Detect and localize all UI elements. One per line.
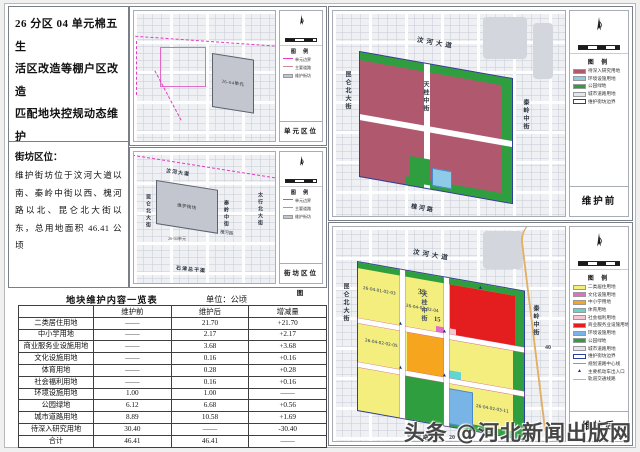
value-cell: 0.16 — [171, 376, 249, 388]
legend-item: 单元边界 — [283, 198, 319, 204]
legend-item: 商业服务业设施用地 — [573, 322, 625, 328]
watermark: 头条 @河北新闻出版网 — [404, 417, 632, 447]
legend-item: 公园绿地 — [573, 83, 625, 89]
parcel-code: 26-04-02-03-11 — [476, 403, 509, 414]
row-label: 环境设施用地 — [19, 388, 94, 400]
legend-swatch — [573, 76, 586, 81]
legend-label: 单元边界 — [295, 57, 311, 63]
legend-item: 轨道交通线路 — [573, 376, 625, 382]
legend-swatch — [573, 379, 586, 380]
legend-item: 城市道路用地 — [573, 91, 625, 97]
legend-swatch — [573, 363, 586, 364]
value-cell: —— — [94, 376, 172, 388]
table-row: 体育用地——0.28+0.28 — [19, 364, 327, 376]
block-map-legend: 图 例 单元边界主要道路维护街坊 — [280, 186, 322, 263]
unit-location-map: 26-04单元 图 例 单元边界主要道路维护街坊 单元区位图 — [129, 6, 327, 146]
legend-label: 主要道路 — [295, 206, 311, 212]
row-label: 二类居住用地 — [19, 317, 94, 329]
legend-swatch — [283, 66, 293, 70]
before-parcel — [359, 51, 513, 204]
road-label-left: 昆仑北大街 — [343, 71, 352, 111]
legend-title: 图 例 — [573, 273, 625, 282]
legend-swatch — [283, 199, 293, 203]
legend-label: 维护街坊 — [295, 73, 311, 79]
unit-map-canvas: 26-04单元 — [133, 10, 276, 142]
legend-item: 环境设施用地 — [573, 330, 625, 336]
row-label: 商业服务业设施用地 — [19, 341, 94, 353]
road-label-right: 太行北大街 — [256, 192, 263, 227]
block-map-canvas: 维护街坊 汶河大道 昆仑北大街 秦岭中街 太行北大街 石津总干渠 槐河路 26-… — [133, 151, 276, 284]
value-cell: 3.68 — [171, 341, 249, 353]
location-heading: 街坊区位： — [15, 149, 122, 163]
table-title: 地块维护内容一览表 — [66, 292, 158, 306]
block-map-sidebar: 图 例 单元边界主要道路维护街坊 街坊区位图 — [279, 151, 323, 284]
road-label-left: 昆仑北大街 — [341, 283, 350, 323]
row-label: 体育用地 — [19, 364, 94, 376]
table-row: 城市道路用地8.8910.58+1.69 — [19, 412, 327, 424]
legend-swatch — [573, 323, 586, 328]
scale-bar — [285, 38, 317, 42]
legend-label: 城市道路用地 — [588, 91, 616, 97]
location-description: 街坊区位： 维护街坊位于汶河大道以南、秦岭中街以西、槐河路以北、昆仑北大街以东，… — [8, 141, 129, 288]
legend-label: 维护街坊 — [295, 214, 311, 220]
table-row: 待深入研究用地30.40——-30.40 — [19, 423, 327, 435]
value-cell: +21.70 — [249, 317, 327, 329]
entrance-triangle-icon: ▲ — [398, 365, 403, 371]
compass-icon — [593, 16, 605, 41]
value-cell: +2.17 — [249, 329, 327, 341]
legend-swatch — [573, 331, 586, 336]
legend-label: 环境设施用地 — [588, 330, 616, 336]
value-cell: 0.16 — [171, 353, 249, 365]
block-number: 15 — [434, 316, 441, 324]
road-label-bottom: 石津总干渠 — [176, 264, 207, 274]
legend-title: 图 例 — [573, 57, 625, 66]
entrance-triangle-icon: ▲ — [442, 329, 447, 335]
legend-label: 文化设施用地 — [588, 292, 616, 298]
legend-title: 图 例 — [283, 189, 319, 196]
legend-item: 待深入研究用地 — [573, 68, 625, 74]
legend-swatch — [573, 285, 586, 290]
unit-block-label: 26-04单元 — [222, 79, 245, 89]
road-label-top: 汶河大道 — [412, 246, 451, 262]
block-map-caption: 街坊区位图 — [280, 263, 322, 283]
page-title: 26 分区 04 单元棉五生 活区改造等棚户区改造 匹配地块控规动态维护 方案 — [8, 6, 129, 142]
table-row: 中小学用地——2.17+2.17 — [19, 329, 327, 341]
unit-map-legend: 图 例 单元边界主要道路维护街坊 — [280, 45, 322, 121]
unit-subarea-outline — [160, 47, 206, 87]
road-label-center: 秦岭中街 — [222, 200, 229, 228]
road-label-center: 天桂中街 — [419, 291, 428, 323]
legend-swatch — [573, 315, 586, 320]
planning-sheet: 26 分区 04 单元棉五生 活区改造等棚户区改造 匹配地块控规动态维护 方案 … — [0, 0, 640, 452]
legend-item: 二类居住用地 — [573, 284, 625, 290]
unit-highlight-block: 26-04单元 — [212, 53, 254, 114]
road-label-left: 昆仑北大街 — [144, 194, 151, 229]
entrance-triangle-icon: ▲ — [398, 321, 403, 327]
legend-swatch — [283, 207, 293, 211]
value-cell: 1.00 — [94, 388, 172, 400]
legend-swatch — [573, 69, 586, 74]
legend-swatch — [573, 99, 586, 104]
legend-item: 体育用地 — [573, 307, 625, 313]
unit-note: 26-04单元 — [168, 236, 186, 242]
value-cell: —— — [94, 317, 172, 329]
table-row: 文化设施用地——0.16+0.16 — [19, 353, 327, 365]
legend-item: 维护街坊 — [283, 214, 319, 220]
legend-item: 中小学用地 — [573, 299, 625, 305]
legend-label: 中小学用地 — [588, 299, 611, 305]
legend-swatch — [573, 354, 586, 359]
row-label: 公园绿地 — [19, 400, 94, 412]
legend-title: 图 例 — [283, 48, 319, 55]
entrance-triangle-icon: ▲ — [478, 285, 483, 291]
road-label-bottom: 槐河路 — [410, 201, 435, 214]
legend-swatch — [573, 92, 586, 97]
compass-icon — [297, 14, 306, 34]
before-map-legend: 图 例 待深入研究用地环境设施用地公园绿地城市道路用地维护街坊边界 — [570, 53, 628, 186]
legend-swatch — [283, 58, 293, 62]
after-map-canvas: 26-04-01-02-03 26-04-01-02-04 26-04-02-0… — [332, 226, 566, 442]
before-map-caption: 维护前 — [570, 186, 628, 216]
value-cell: 6.12 — [94, 400, 172, 412]
legend-item: 环境设施用地 — [573, 76, 625, 82]
built-area-blob — [533, 23, 553, 79]
legend-item: 维护街坊边界 — [573, 353, 625, 359]
legend-label: 轨道交通线路 — [588, 376, 616, 382]
legend-swatch — [573, 84, 586, 89]
row-label: 合计 — [19, 435, 94, 447]
table-row: 环境设施用地1.001.00—— — [19, 388, 327, 400]
value-cell: 30.40 — [94, 423, 172, 435]
legend-label: 环境设施用地 — [588, 76, 616, 82]
land-use-table: 地块维护内容一览表 单位：公顷 维护前维护后增减量二类居住用地——21.70+2… — [14, 292, 330, 444]
value-cell: 0.28 — [171, 364, 249, 376]
land-use-table-grid: 维护前维护后增减量二类居住用地——21.70+21.70中小学用地——2.17+… — [18, 305, 327, 448]
legend-label: 待深入研究用地 — [588, 68, 620, 74]
compass-icon — [297, 155, 306, 175]
compass-icon — [593, 232, 605, 257]
environment-block — [432, 168, 452, 190]
value-cell: 46.41 — [171, 435, 249, 447]
unit-boundary-dash — [136, 41, 144, 95]
legend-swatch — [573, 308, 586, 313]
road-label-right: 秦岭中街 — [531, 305, 540, 337]
legend-label: 主要道路 — [295, 65, 311, 71]
road-strip — [360, 114, 512, 147]
road-label-top: 汶河大道 — [416, 34, 455, 50]
after-parcel: 26-04-01-02-03 26-04-01-02-04 26-04-02-0… — [357, 261, 525, 441]
value-cell: +0.16 — [249, 353, 327, 365]
table-header: 增减量 — [249, 306, 327, 318]
value-cell: 10.58 — [171, 412, 249, 424]
transit-line — [518, 226, 566, 442]
parcel-code: 26-04-01-02-03 — [363, 285, 396, 296]
value-cell: 2.17 — [171, 329, 249, 341]
scale-bar — [285, 179, 317, 183]
table-row: 商业服务业设施用地——3.68+3.68 — [19, 341, 327, 353]
road-number: 40 — [545, 345, 551, 351]
road-strip — [400, 270, 405, 419]
value-cell: 1.00 — [171, 388, 249, 400]
legend-label: 体育用地 — [588, 307, 606, 313]
legend-item: 维护街坊边界 — [573, 99, 625, 105]
table-row: 二类居住用地——21.70+21.70 — [19, 317, 327, 329]
row-label: 待深入研究用地 — [19, 423, 94, 435]
legend-swatch — [573, 346, 586, 351]
legend-item: ▲主要机动车出入口 — [573, 369, 625, 375]
value-cell: —— — [249, 388, 327, 400]
legend-swatch — [283, 215, 293, 219]
before-map-sidebar: 图 例 待深入研究用地环境设施用地公园绿地城市道路用地维护街坊边界 维护前 — [569, 10, 629, 217]
value-cell: +0.16 — [249, 376, 327, 388]
legend-item: 主要道路 — [283, 65, 319, 71]
table-row: 公园绿地6.126.68+0.56 — [19, 400, 327, 412]
entrance-triangle-icon: ▲ — [442, 373, 447, 379]
value-cell: 21.70 — [171, 317, 249, 329]
legend-swatch — [573, 338, 586, 343]
built-area-blob — [483, 231, 523, 269]
legend-swatch — [573, 300, 586, 305]
value-cell: —— — [171, 423, 249, 435]
unit-boundary-dash — [133, 154, 276, 183]
scale-bar — [578, 45, 620, 50]
road-strip — [444, 277, 449, 426]
legend-label: 城市道路用地 — [588, 346, 616, 352]
legend-label: 二类居住用地 — [588, 284, 616, 290]
park-patch — [410, 156, 430, 186]
scale-bar — [578, 261, 620, 266]
legend-item: 主要道路 — [283, 206, 319, 212]
row-label: 文化设施用地 — [19, 353, 94, 365]
legend-swatch — [573, 292, 586, 297]
row-label: 社会福利用地 — [19, 376, 94, 388]
block-location-map: 维护街坊 汶河大道 昆仑北大街 秦岭中街 太行北大街 石津总干渠 槐河路 26-… — [129, 147, 327, 288]
block-label: 维护街坊 — [177, 202, 197, 211]
value-cell: +1.69 — [249, 412, 327, 424]
value-cell: 46.41 — [94, 435, 172, 447]
table-header — [19, 306, 94, 318]
value-cell: 8.89 — [94, 412, 172, 424]
legend-label: 公园绿地 — [588, 83, 606, 89]
value-cell: +3.68 — [249, 341, 327, 353]
row-label: 中小学用地 — [19, 329, 94, 341]
road-label-center: 天桂中街 — [421, 81, 430, 113]
legend-item: 公园绿地 — [573, 338, 625, 344]
legend-label: 商业服务业设施用地 — [588, 322, 628, 328]
legend-label: 维护街坊边界 — [588, 353, 616, 359]
value-cell: —— — [94, 364, 172, 376]
value-cell: —— — [94, 329, 172, 341]
table-row: 社会福利用地——0.16+0.16 — [19, 376, 327, 388]
unit-boundary-dash — [133, 35, 276, 47]
unit-map-sidebar: 图 例 单元边界主要道路维护街坊 单元区位图 — [279, 10, 323, 142]
legend-item: 社会福利用地 — [573, 315, 625, 321]
after-map-sidebar: 图 例 二类居住用地文化设施用地中小学用地体育用地社会福利用地商业服务业设施用地… — [569, 226, 629, 442]
parcel-code: 26-04-02-02-05 — [365, 337, 398, 348]
after-map-legend: 图 例 二类居住用地文化设施用地中小学用地体育用地社会福利用地商业服务业设施用地… — [570, 269, 628, 411]
road-label-right: 秦岭中街 — [521, 99, 530, 131]
before-map: 汶河大道 昆仑北大街 天桂中街 秦岭中街 槐河路 图 例 待深入研究用地环境设施… — [328, 6, 633, 221]
legend-item: 单元边界 — [283, 57, 319, 63]
legend-label: 公园绿地 — [588, 338, 606, 344]
legend-label: 规划道路中心线 — [588, 361, 620, 367]
value-cell: —— — [94, 341, 172, 353]
value-cell: —— — [94, 353, 172, 365]
legend-label: 维护街坊边界 — [588, 99, 616, 105]
road-label-top: 汶河大道 — [166, 167, 191, 178]
table-header: 维护后 — [171, 306, 249, 318]
table-header: 维护前 — [94, 306, 172, 318]
legend-item: 文化设施用地 — [573, 292, 625, 298]
legend-label: 单元边界 — [295, 198, 311, 204]
value-cell: +0.56 — [249, 400, 327, 412]
before-map-canvas: 汶河大道 昆仑北大街 天桂中街 秦岭中街 槐河路 — [332, 10, 566, 217]
built-area-blob — [483, 17, 527, 59]
value-cell: —— — [249, 435, 327, 447]
unit-map-caption: 单元区位图 — [280, 121, 322, 141]
after-map: 26-04-01-02-03 26-04-01-02-04 26-04-02-0… — [328, 222, 633, 446]
road-label-huaihe: 槐河路 — [220, 229, 234, 237]
legend-swatch: ▲ — [573, 369, 586, 374]
legend-label: 社会福利用地 — [588, 315, 616, 321]
value-cell: -30.40 — [249, 423, 327, 435]
legend-label: 主要机动车出入口 — [588, 369, 625, 375]
legend-item: 维护街坊 — [283, 73, 319, 79]
location-body: 维护街坊位于汶河大道以南、秦岭中街以西、槐河路以北、昆仑北大街以东，总用地面积 … — [15, 167, 122, 255]
row-label: 城市道路用地 — [19, 412, 94, 424]
value-cell: 6.68 — [171, 400, 249, 412]
maintained-block: 维护街坊 — [156, 180, 218, 234]
table-title-bar: 地块维护内容一览表 单位：公顷 — [14, 292, 330, 305]
table-unit-label: 单位：公顷 — [206, 293, 247, 305]
legend-item: 规划道路中心线 — [573, 361, 625, 367]
legend-swatch — [283, 74, 293, 78]
legend-item: 城市道路用地 — [573, 346, 625, 352]
value-cell: +0.28 — [249, 364, 327, 376]
table-row: 合计46.4146.41—— — [19, 435, 327, 447]
